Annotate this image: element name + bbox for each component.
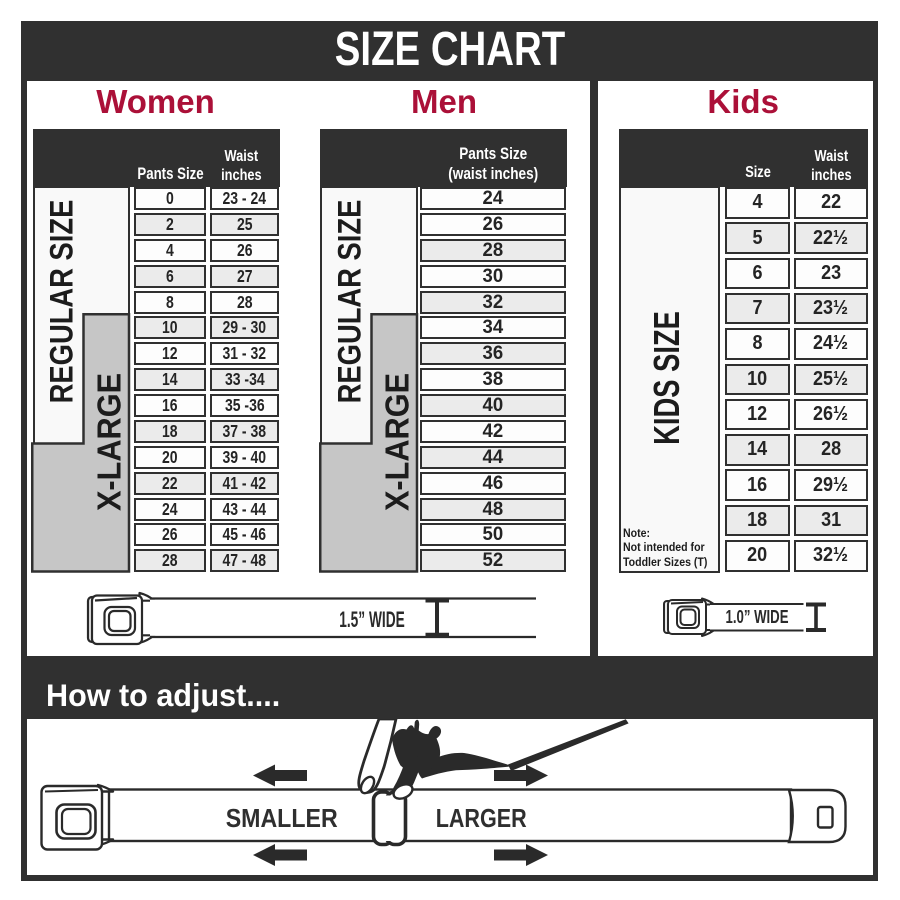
svg-text:SMALLER: SMALLER: [226, 803, 338, 833]
svg-text:1.5” WIDE: 1.5” WIDE: [339, 607, 405, 632]
svg-text:1.0” WIDE: 1.0” WIDE: [726, 607, 789, 627]
svg-text:LARGER: LARGER: [436, 803, 527, 833]
